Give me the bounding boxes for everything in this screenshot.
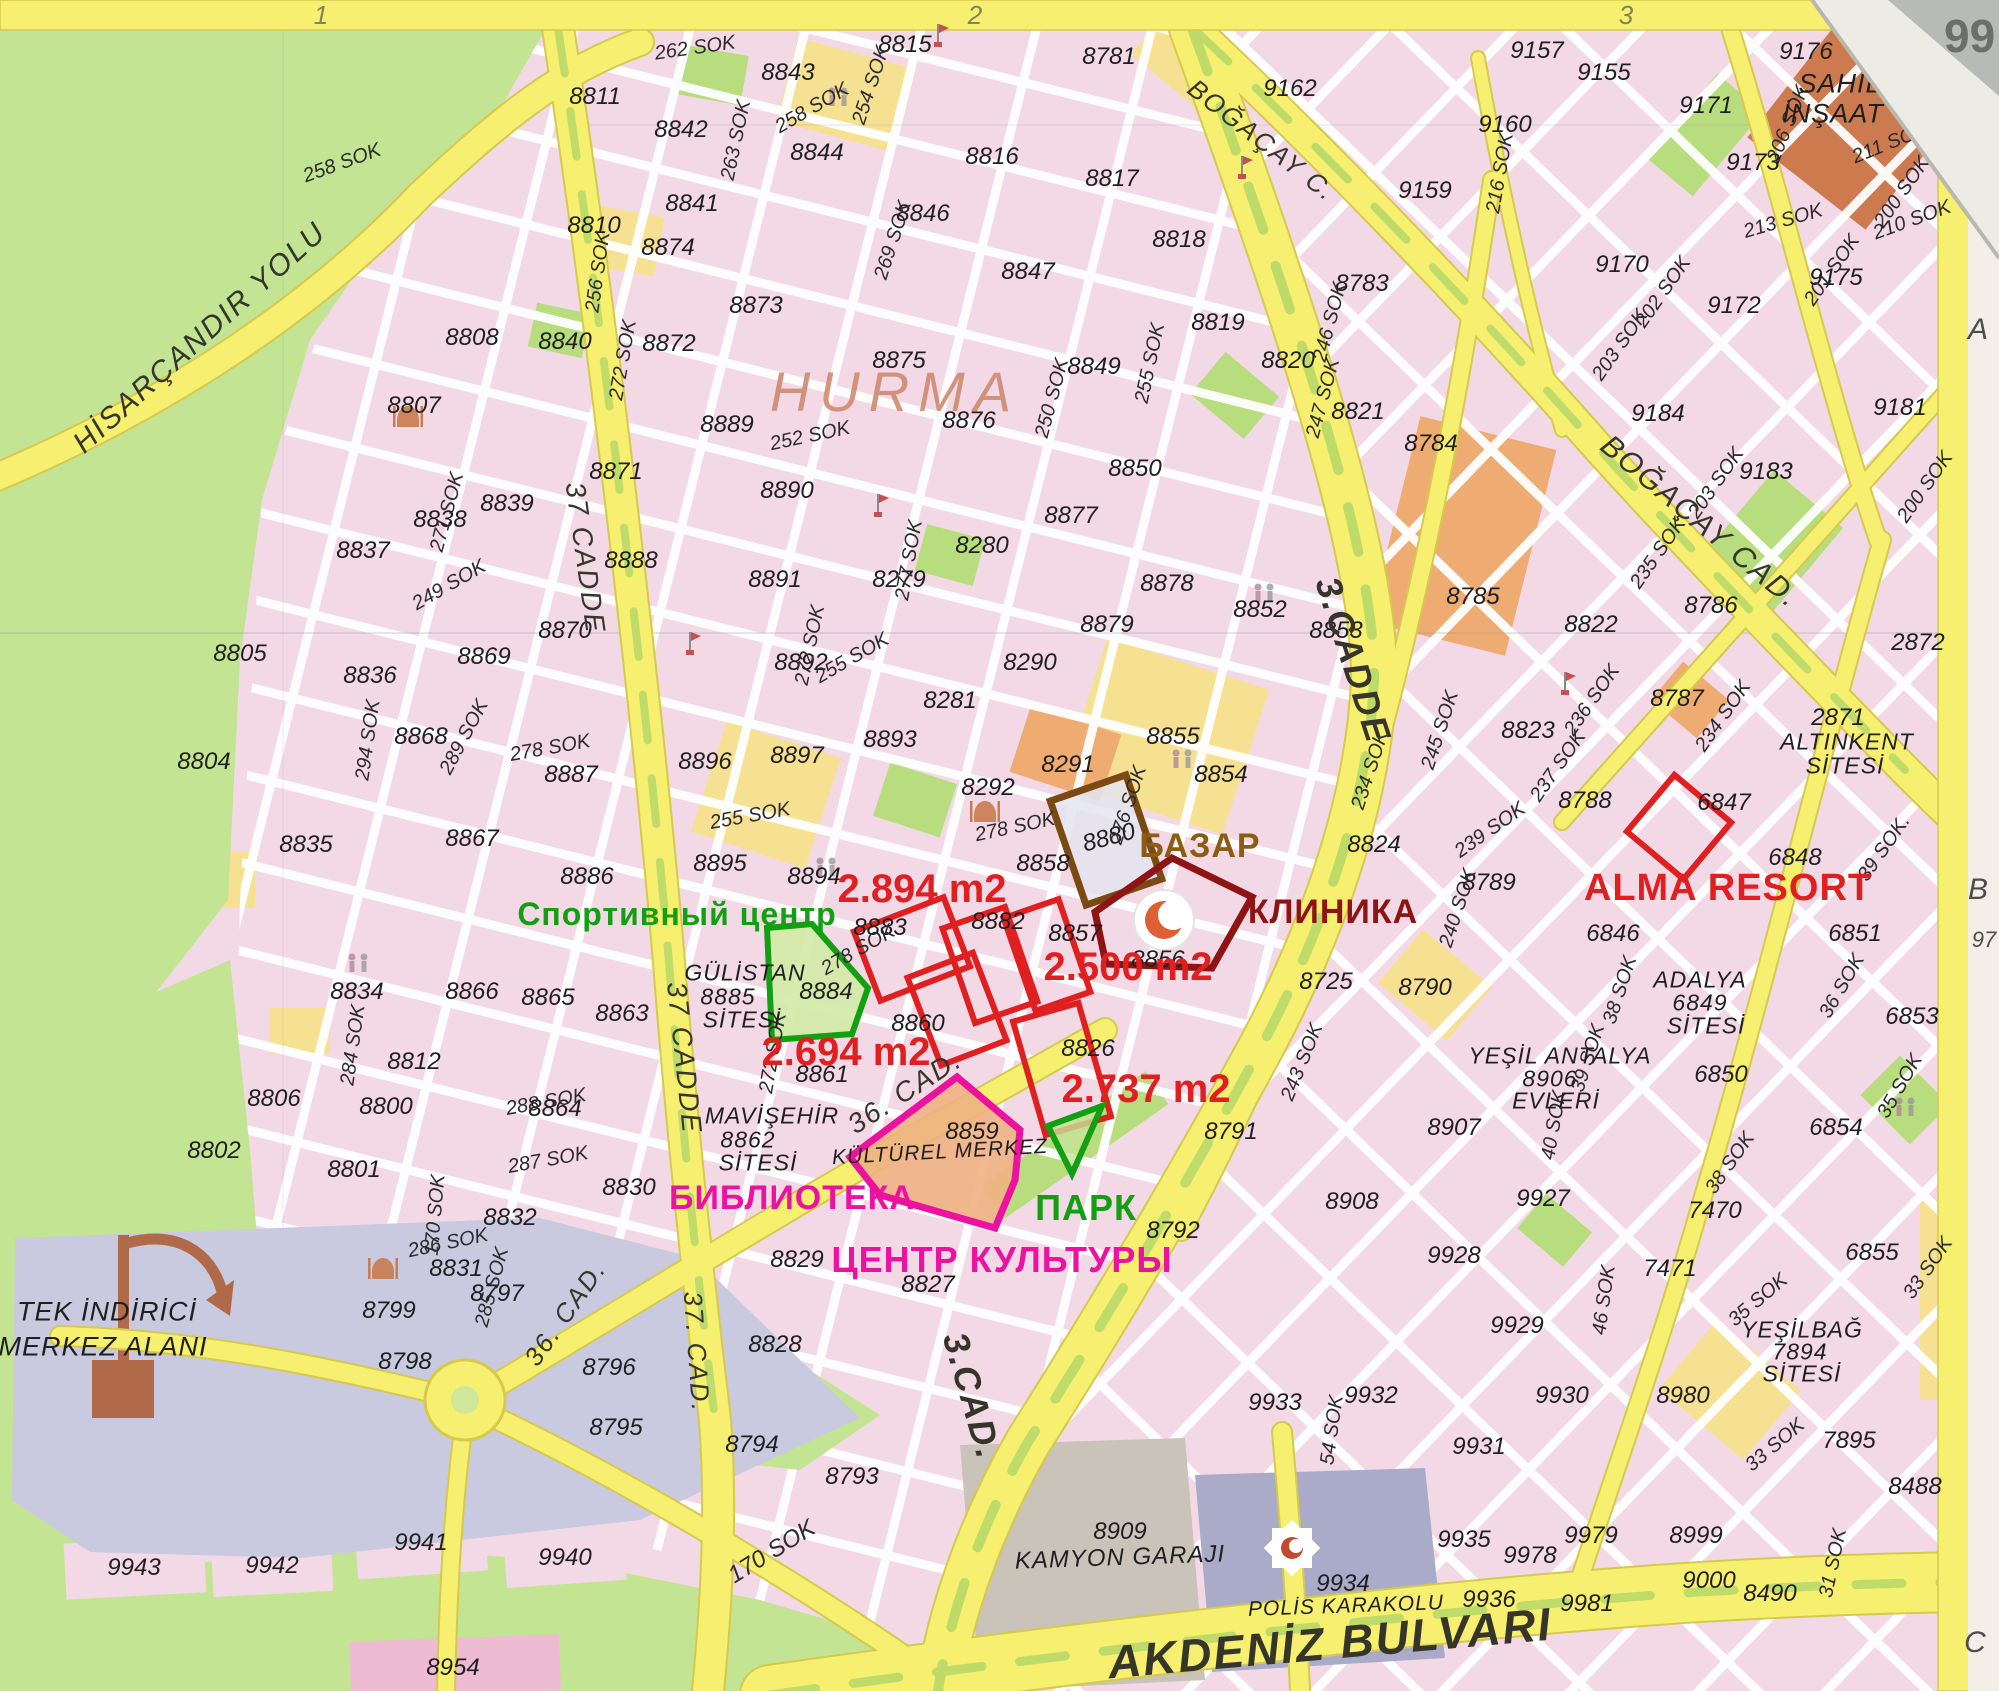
road-name-label: HİSARÇANDIR YOLU bbox=[68, 217, 332, 459]
block-number-label: 8842 bbox=[654, 118, 707, 142]
block-number-label: 8787 bbox=[1650, 687, 1703, 711]
block-number-label: 9176 bbox=[1779, 40, 1832, 64]
block-number-label: 8874 bbox=[641, 236, 694, 260]
block-number-label: 7471 bbox=[1643, 1257, 1696, 1281]
street-name-label: 258 SOK bbox=[300, 140, 383, 187]
block-number-label: 8888 bbox=[604, 549, 657, 573]
annotation-label: ПАРК bbox=[1035, 1190, 1137, 1226]
grid-number-label: 3 bbox=[1619, 2, 1633, 28]
block-number-label: 8889 bbox=[700, 413, 753, 437]
block-number-label: 8882 bbox=[971, 910, 1024, 934]
block-number-label: 9155 bbox=[1577, 61, 1630, 85]
block-number-label: 8886 bbox=[560, 865, 613, 889]
block-number-label: 8816 bbox=[965, 145, 1018, 169]
area-measure-label: 2.737 m2 bbox=[1061, 1069, 1230, 1109]
street-name-label: 239 SOK bbox=[1451, 799, 1529, 862]
block-number-label: 8800 bbox=[359, 1095, 412, 1119]
road-name-label: 37 CADDE bbox=[662, 980, 706, 1135]
site-name-label: İNŞAAT bbox=[1782, 101, 1884, 128]
block-number-label: 8807 bbox=[387, 394, 440, 418]
block-number-label: 7470 bbox=[1688, 1199, 1741, 1223]
street-name-label: 254 SOK bbox=[849, 43, 893, 126]
site-name-label: GÜLİSTAN bbox=[684, 962, 805, 985]
street-name-label: 31 SOK bbox=[1816, 1527, 1850, 1600]
block-number-label: 9172 bbox=[1707, 294, 1760, 318]
site-name-label: KAMYON GARAJI bbox=[1014, 1542, 1225, 1573]
block-number-label: 9932 bbox=[1344, 1384, 1397, 1408]
site-name-label: SİTESİ bbox=[1667, 1015, 1746, 1038]
block-number-label: 8824 bbox=[1347, 833, 1400, 857]
street-name-label: 263 SOK bbox=[718, 98, 754, 182]
street-name-label: 269 SOK bbox=[871, 198, 915, 281]
block-number-label: 8895 bbox=[693, 852, 746, 876]
block-number-label: 8893 bbox=[863, 728, 916, 752]
street-name-label: 246 SOK bbox=[1310, 280, 1350, 364]
block-number-label: 8847 bbox=[1001, 260, 1054, 284]
block-number-label: 9928 bbox=[1427, 1244, 1480, 1268]
annotation-label: Спортивный центр bbox=[517, 898, 836, 930]
site-name-label: MAVİŞEHİR bbox=[705, 1105, 839, 1128]
street-name-label: 252 SOK bbox=[768, 418, 852, 454]
area-measure-label: 2.500 m2 bbox=[1043, 947, 1212, 987]
block-number-label: 9000 bbox=[1682, 1569, 1735, 1593]
block-number-label: 8908 bbox=[1325, 1190, 1378, 1214]
block-number-label: 8844 bbox=[790, 141, 843, 165]
street-name-label: 287 SOK bbox=[506, 1143, 589, 1177]
street-name-label: 33 SOK bbox=[1900, 1234, 1957, 1303]
block-number-label: 8821 bbox=[1331, 400, 1384, 424]
block-number-label: 8863 bbox=[595, 1002, 648, 1026]
block-number-label: 8794 bbox=[725, 1433, 778, 1457]
block-number-label: 8790 bbox=[1398, 976, 1451, 1000]
street-name-label: 35 SOK bbox=[1874, 1051, 1926, 1122]
site-name-label: MERKEZ ALANI bbox=[0, 1334, 208, 1361]
block-number-label: 8840 bbox=[538, 330, 591, 354]
block-number-label: 9159 bbox=[1398, 179, 1451, 203]
block-number-label: 8280 bbox=[955, 534, 1008, 558]
street-name-label: 249 SOK bbox=[409, 556, 489, 614]
block-number-label: 8850 bbox=[1108, 457, 1161, 481]
street-name-label: 245 SOK bbox=[1418, 688, 1462, 771]
block-number-label: 6854 bbox=[1809, 1116, 1862, 1140]
block-number-label: 8849 bbox=[1067, 355, 1120, 379]
block-number-label: 6846 bbox=[1586, 922, 1639, 946]
block-number-label: 9934 bbox=[1316, 1572, 1369, 1596]
site-name-label: SİTESİ bbox=[1806, 755, 1885, 778]
street-name-label: 170 SOK bbox=[724, 1516, 819, 1588]
block-number-label: 8725 bbox=[1299, 970, 1352, 994]
block-number-label: 8896 bbox=[678, 750, 731, 774]
street-name-label: 216 SOK bbox=[1483, 131, 1517, 214]
annotation-label: ЦЕНТР КУЛЬТУРЫ bbox=[831, 1242, 1172, 1278]
block-number-label: 8872 bbox=[642, 332, 695, 356]
block-number-label: 8819 bbox=[1191, 311, 1244, 335]
block-number-label: 6850 bbox=[1694, 1063, 1747, 1087]
block-number-label: 8796 bbox=[582, 1356, 635, 1380]
block-number-label: 8877 bbox=[1044, 504, 1097, 528]
street-name-label: 38 SOK bbox=[1600, 954, 1641, 1027]
block-number-label: 8884 bbox=[799, 980, 852, 1004]
block-number-label: 8871 bbox=[589, 460, 642, 484]
block-number-label: 8839 bbox=[480, 492, 533, 516]
block-number-label: 8791 bbox=[1204, 1120, 1257, 1144]
block-number-label: 8891 bbox=[748, 568, 801, 592]
street-name-label: 200 SOK bbox=[1894, 448, 1957, 526]
block-number-label: 8784 bbox=[1404, 432, 1457, 456]
site-name-label: SAHİL bbox=[1798, 71, 1881, 98]
block-number-label: 8817 bbox=[1085, 167, 1138, 191]
block-number-label: 8878 bbox=[1140, 572, 1193, 596]
street-name-label: 240 SOK bbox=[1436, 866, 1480, 949]
block-number-label: 8822 bbox=[1564, 613, 1617, 637]
block-number-label: 8857 bbox=[1048, 922, 1101, 946]
street-name-label: 278 SOK bbox=[973, 809, 1057, 845]
block-number-label: 8852 bbox=[1233, 598, 1286, 622]
block-number-label: 9929 bbox=[1490, 1314, 1543, 1338]
area-measure-label: 2.894 m2 bbox=[837, 869, 1006, 909]
block-number-label: 8802 bbox=[187, 1139, 240, 1163]
site-name-label: TEK İNDİRİCİ bbox=[17, 1299, 197, 1326]
block-number-label: 6853 bbox=[1885, 1005, 1938, 1029]
block-number-label: 9927 bbox=[1516, 1187, 1569, 1211]
block-number-label: 8869 bbox=[457, 645, 510, 669]
site-name-label: SİTESİ bbox=[1763, 1363, 1842, 1386]
block-number-label: 8828 bbox=[748, 1333, 801, 1357]
site-name-label: SİTESİ bbox=[703, 1009, 782, 1032]
block-number-label: 8909 bbox=[1093, 1520, 1146, 1544]
street-name-label: 256 SOK bbox=[582, 230, 613, 313]
block-number-label: 8831 bbox=[429, 1257, 482, 1281]
block-number-label: 8890 bbox=[760, 479, 813, 503]
block-number-label: 6855 bbox=[1845, 1241, 1898, 1265]
street-name-label: 272 SOK bbox=[606, 318, 640, 401]
block-number-label: 2872 bbox=[1891, 631, 1944, 655]
grid-letter-label: C bbox=[1964, 1628, 1986, 1658]
street-name-label: 54 SOK bbox=[1317, 1394, 1347, 1466]
street-name-label: 255 SOK bbox=[708, 799, 791, 833]
block-number-label: 9184 bbox=[1631, 402, 1684, 426]
block-number-label: 8868 bbox=[394, 725, 447, 749]
street-name-label: 258 SOK bbox=[772, 79, 852, 137]
block-number-label: 8879 bbox=[1080, 613, 1133, 637]
block-number-label: 8781 bbox=[1082, 45, 1135, 69]
annotation-label: ALMA RESORT bbox=[1584, 869, 1872, 907]
street-name-label: 243 SOK bbox=[1278, 1021, 1327, 1104]
block-number-label: 8980 bbox=[1656, 1384, 1709, 1408]
annotation-label: КЛИНИКА bbox=[1248, 895, 1418, 929]
block-number-label: 9943 bbox=[107, 1556, 160, 1580]
block-number-label: 8873 bbox=[729, 294, 782, 318]
grid-number-label: 2 bbox=[968, 2, 982, 28]
road-name-label: 3.CAD. bbox=[937, 1329, 1007, 1464]
area-measure-label: 2.694 m2 bbox=[761, 1032, 930, 1072]
map-canvas: 8843881587818816881788118842884488468810… bbox=[0, 0, 1999, 1691]
block-number-label: 9181 bbox=[1873, 396, 1926, 420]
site-name-label: ALTINKENT bbox=[1780, 731, 1914, 754]
annotation-label: БАЗАР bbox=[1139, 829, 1260, 863]
block-number-label: 8788 bbox=[1558, 789, 1611, 813]
block-number-label: 9930 bbox=[1535, 1384, 1588, 1408]
district-name-label: HURMA bbox=[770, 364, 1020, 420]
annotation-label: БИБЛИОТЕКА bbox=[669, 1181, 915, 1215]
block-number-label: 8805 bbox=[213, 642, 266, 666]
block-number-label: 9941 bbox=[394, 1531, 447, 1555]
block-number-label: 8291 bbox=[1041, 753, 1094, 777]
block-number-label: 8806 bbox=[247, 1087, 300, 1111]
road-name-label: 37 CADDE bbox=[560, 480, 609, 635]
block-number-label: 8488 bbox=[1888, 1475, 1941, 1499]
block-number-label: 8823 bbox=[1501, 719, 1554, 743]
grid-number-label: 1 bbox=[314, 2, 328, 28]
block-number-label: 8826 bbox=[1061, 1037, 1114, 1061]
block-number-label: 9162 bbox=[1263, 77, 1316, 101]
block-number-label: 8829 bbox=[770, 1248, 823, 1272]
block-number-label: 7895 bbox=[1822, 1429, 1875, 1453]
block-number-label: 8867 bbox=[445, 827, 498, 851]
block-number-label: 8887 bbox=[544, 763, 597, 787]
block-number-label: 6847 bbox=[1697, 791, 1750, 815]
street-name-label: 250 SOK bbox=[1032, 356, 1072, 440]
site-name-label: ADALYA bbox=[1653, 969, 1746, 992]
street-name-label: 46 SOK bbox=[1589, 1264, 1619, 1336]
block-number-label: 8832 bbox=[483, 1206, 536, 1230]
block-number-label: 8786 bbox=[1684, 594, 1737, 618]
block-number-label: 8897 bbox=[770, 744, 823, 768]
block-number-label: 8793 bbox=[825, 1465, 878, 1489]
block-number-label: 8865 bbox=[521, 986, 574, 1010]
grid-letter-label: B bbox=[1968, 875, 1988, 905]
block-number-label: 9931 bbox=[1452, 1435, 1505, 1459]
block-number-label: 8907 bbox=[1427, 1116, 1480, 1140]
street-name-label: 255 SOK bbox=[1132, 321, 1168, 405]
block-number-label: 8894 bbox=[787, 865, 840, 889]
block-number-label: 8799 bbox=[362, 1299, 415, 1323]
block-number-label: 8804 bbox=[177, 750, 230, 774]
block-number-label: 8812 bbox=[387, 1050, 440, 1074]
block-number-label: 8866 bbox=[445, 980, 498, 1004]
block-number-label: 8999 bbox=[1669, 1524, 1722, 1548]
block-number-label: 8292 bbox=[961, 776, 1014, 800]
grid-letter-label: 97 bbox=[1972, 929, 1996, 951]
block-number-label: 9157 bbox=[1510, 39, 1563, 63]
site-name-label: YEŞİL ANTALYA bbox=[1468, 1045, 1651, 1068]
block-number-label: 9942 bbox=[245, 1554, 298, 1578]
block-number-label: 8843 bbox=[761, 61, 814, 85]
block-number-label: 9940 bbox=[538, 1546, 591, 1570]
street-name-label: 33 SOK bbox=[1742, 1415, 1809, 1475]
street-name-label: 38 SOK bbox=[1702, 1129, 1759, 1198]
block-number-label: 8785 bbox=[1446, 585, 1499, 609]
block-number-label: 8836 bbox=[343, 664, 396, 688]
street-name-label: 294 SOK bbox=[352, 698, 383, 781]
block-number-label: 9170 bbox=[1595, 253, 1648, 277]
block-number-label: 8811 bbox=[569, 85, 621, 109]
block-number-label: 8818 bbox=[1152, 228, 1205, 252]
road-name-label: 37. CAD. bbox=[680, 1290, 714, 1413]
block-number-label: 8858 bbox=[1016, 852, 1069, 876]
road-name-label: 3.CADDE bbox=[1309, 573, 1396, 748]
map-labels: 8843881587818816881788118842884488468810… bbox=[0, 0, 1999, 1691]
block-number-label: 9933 bbox=[1248, 1391, 1301, 1415]
street-name-label: 278 SOK bbox=[508, 731, 591, 765]
block-number-label: 8841 bbox=[665, 192, 718, 216]
road-name-label: BOĞAÇAY C. bbox=[1183, 75, 1340, 206]
site-name-label: KÜLTÜREL MERKEZ bbox=[832, 1136, 1049, 1168]
block-number-label: 8281 bbox=[923, 689, 976, 713]
street-name-label: 262 SOK bbox=[653, 32, 736, 63]
block-number-label: 8490 bbox=[1743, 1582, 1796, 1606]
street-name-label: 36 SOK bbox=[1816, 951, 1868, 1022]
block-number-label: 6851 bbox=[1828, 922, 1881, 946]
street-name-label: 284 SOK bbox=[337, 1003, 368, 1086]
block-number-label: 8954 bbox=[426, 1656, 479, 1680]
site-name-label: 8885 bbox=[700, 986, 755, 1009]
street-name-label: 213 SOK bbox=[1741, 200, 1825, 242]
block-number-label: 8808 bbox=[445, 326, 498, 350]
block-number-label: 9979 bbox=[1564, 1524, 1617, 1548]
site-name-label: 8862 bbox=[720, 1129, 775, 1152]
grid-letter-label: A bbox=[1968, 315, 1988, 345]
block-number-label: 8290 bbox=[1003, 651, 1056, 675]
block-number-label: 8798 bbox=[378, 1350, 431, 1374]
block-number-label: 8801 bbox=[327, 1158, 380, 1182]
block-number-label: 8834 bbox=[330, 980, 383, 1004]
block-number-label: 8855 bbox=[1146, 725, 1199, 749]
site-name-label: 6849 bbox=[1672, 992, 1727, 1015]
block-number-label: 9981 bbox=[1560, 1592, 1613, 1616]
block-number-label: 9935 bbox=[1437, 1528, 1490, 1552]
block-number-label: 9978 bbox=[1503, 1544, 1556, 1568]
block-number-label: 2871 bbox=[1811, 706, 1864, 730]
block-number-label: 8830 bbox=[602, 1176, 655, 1200]
block-number-label: 8837 bbox=[336, 539, 389, 563]
site-name-label: EVLERİ bbox=[1512, 1090, 1600, 1113]
block-number-label: 9171 bbox=[1679, 94, 1732, 118]
block-number-label: 8854 bbox=[1194, 763, 1247, 787]
block-number-label: 8820 bbox=[1261, 349, 1314, 373]
block-number-label: 8835 bbox=[279, 833, 332, 857]
street-name-label: 236 SOK bbox=[1561, 661, 1624, 739]
block-number-label: 9183 bbox=[1739, 460, 1792, 484]
site-name-label: SİTESİ bbox=[719, 1152, 798, 1175]
block-number-label: 8795 bbox=[589, 1416, 642, 1440]
